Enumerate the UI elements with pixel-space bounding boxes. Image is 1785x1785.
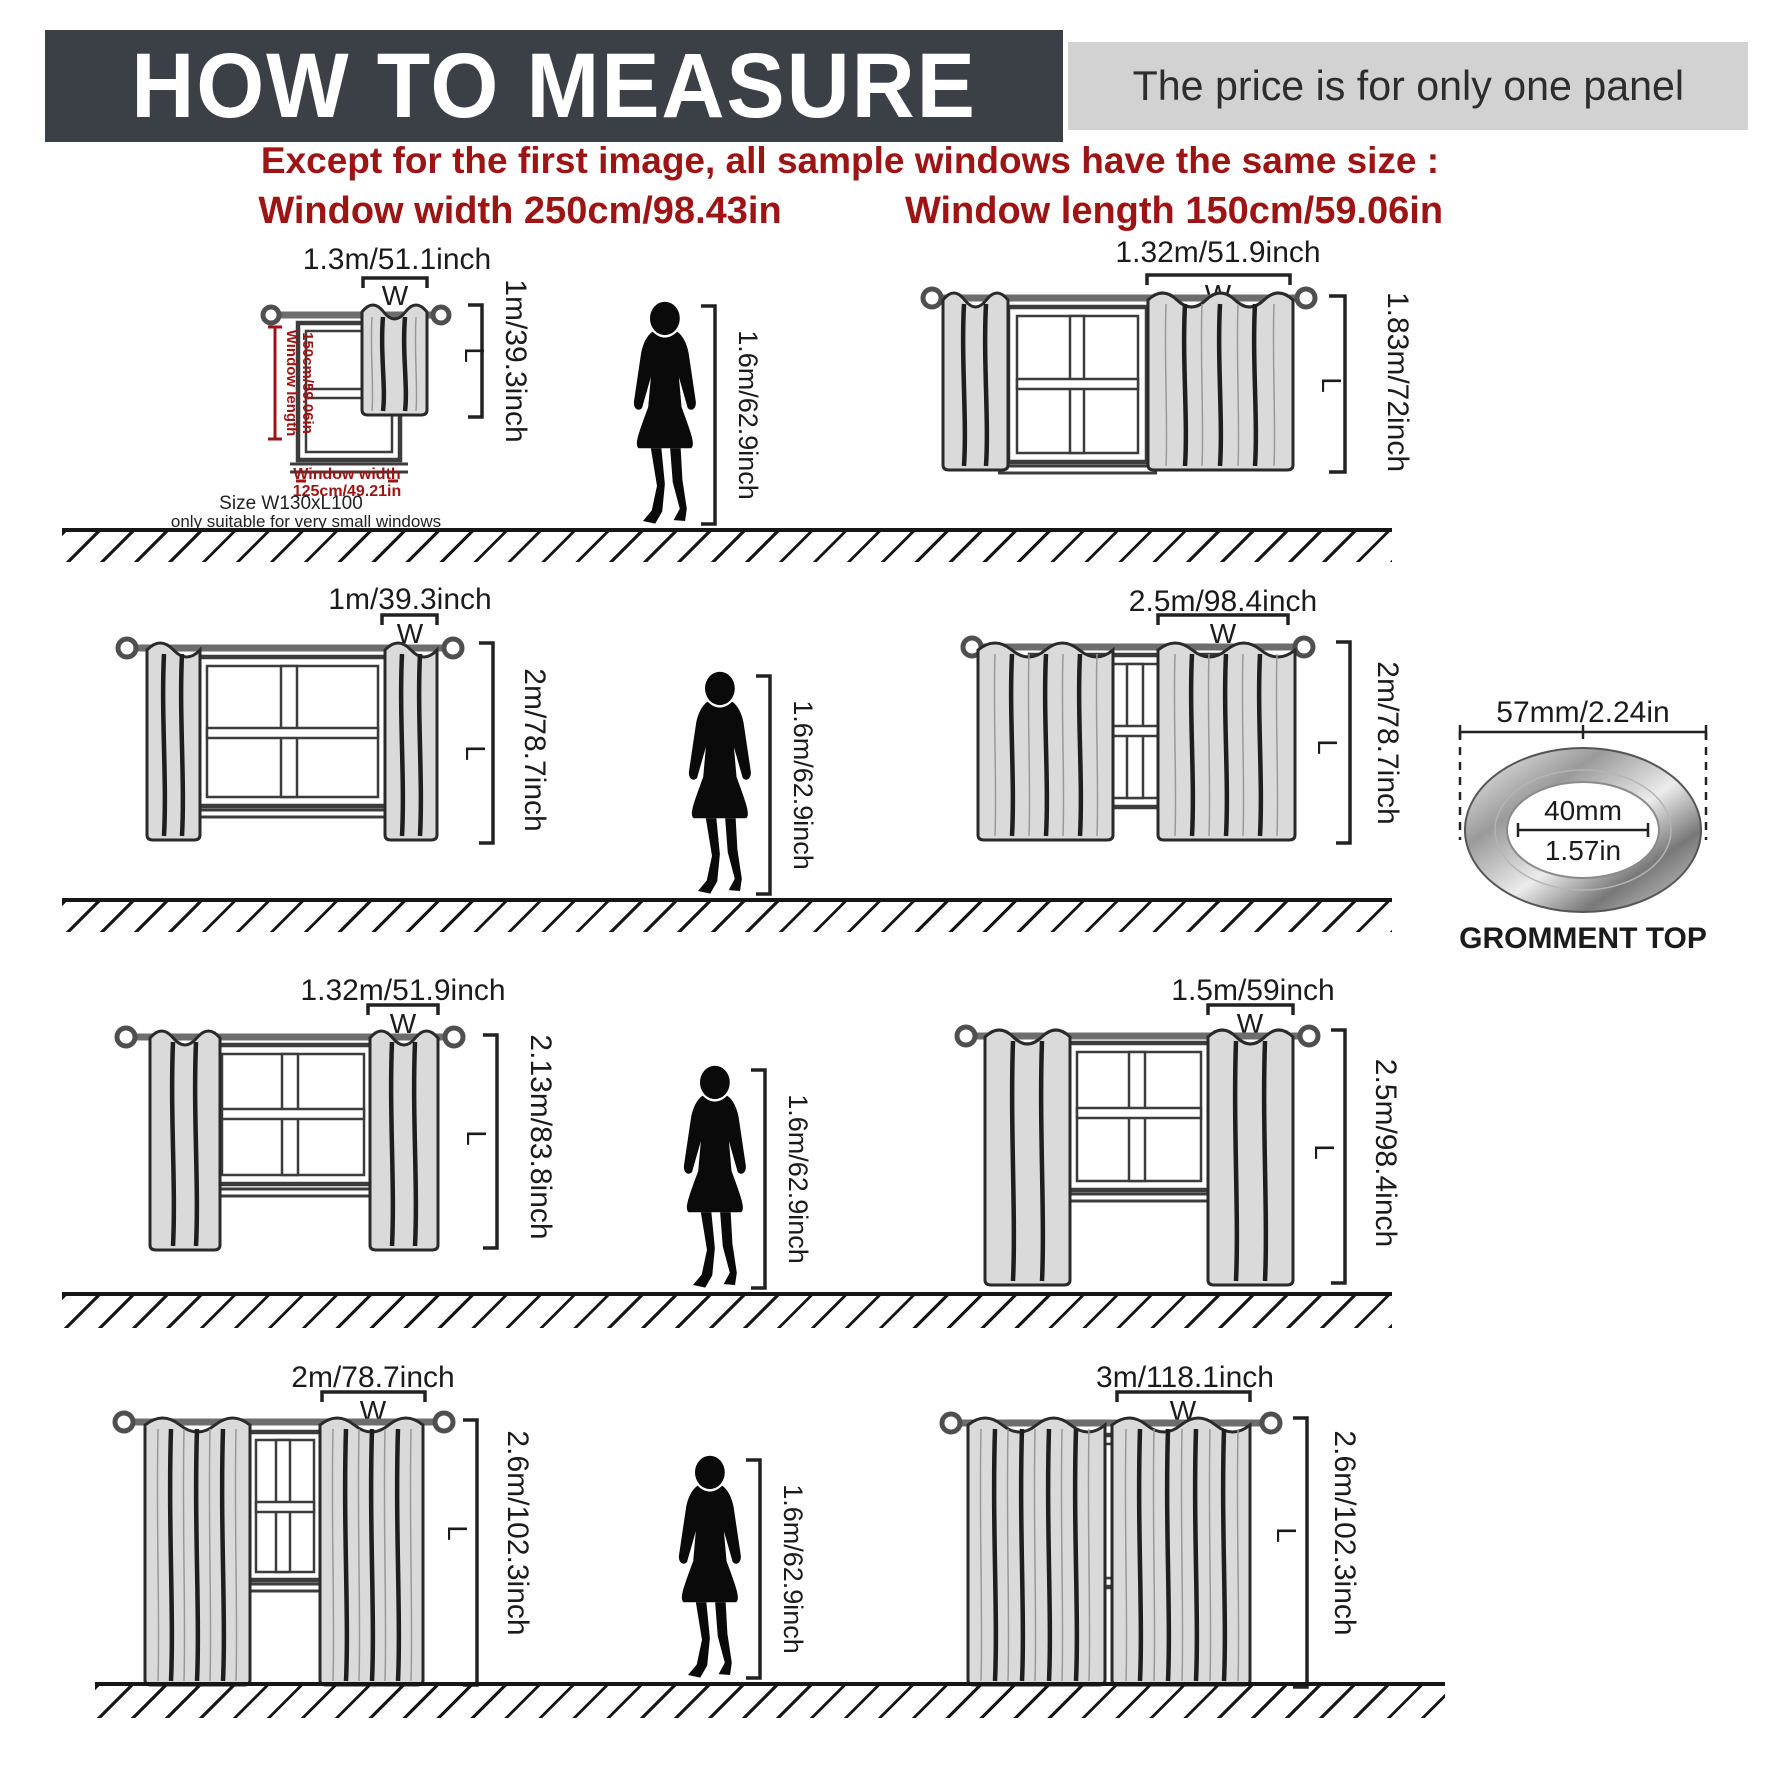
length-dimension-label: 2.6m/102.3inch	[501, 1430, 534, 1635]
length-dimension-label: 1.83m/72inch	[1381, 292, 1414, 472]
size-note: Size W130xL100	[219, 493, 363, 514]
diagram-curtain-3m-full: 3m/118.1inch W	[900, 1365, 1420, 1720]
person-height-label: 1.6m/62.9inch	[778, 1484, 808, 1654]
diagram-curtain-2m-right: 2.5m/98.4inch W	[930, 585, 1450, 915]
how-to-measure-infographic: HOW TO MEASURE The price is for only one…	[0, 0, 1785, 1785]
curtain-panel-right	[1112, 1418, 1250, 1685]
grommet-inner-mm-label: 40mm	[1544, 795, 1622, 826]
length-dimension-label: 2.6m/102.3inch	[1328, 1430, 1361, 1635]
window	[205, 1045, 381, 1196]
grommet-outer-diameter-label: 57mm/2.24in	[1496, 696, 1669, 729]
curtain-panel-left	[147, 643, 200, 840]
person-height-bracket	[756, 676, 770, 894]
grommet-inner-in-label: 1.57in	[1545, 835, 1621, 866]
l-letter: L	[460, 745, 491, 761]
person-silhouette	[684, 1066, 746, 1288]
curtain-panel-right	[1208, 1030, 1293, 1285]
curtain-panel-right	[385, 643, 437, 840]
grommet-detail: 57mm/2.24in 40mm 1.57in GROMMENT TOP	[1440, 690, 1760, 980]
person-scale-row1: 1.6m/62.9inch	[605, 296, 805, 536]
length-dimension-label: 2m/78.7inch	[1371, 661, 1404, 824]
width-dimension-label: 1.3m/51.1inch	[303, 243, 491, 276]
grommet-caption: GROMMENT TOP	[1459, 922, 1707, 955]
diagram-curtain-2p5m: 1.5m/59inch W L 2.5m/98.4inch	[930, 975, 1450, 1315]
length-dimension-label: 2.5m/98.4inch	[1369, 1059, 1402, 1247]
length-bracket	[479, 643, 493, 843]
title-banner: HOW TO MEASURE	[45, 30, 1063, 142]
intro-window-length-note: Window length 150cm/59.06in	[874, 190, 1474, 233]
person-height-label: 1.6m/62.9inch	[783, 1094, 813, 1264]
person-height-label: 1.6m/62.9inch	[788, 700, 818, 870]
diagram-curtain-2m-left: 1m/39.3inch W L 2m/78.7inch	[80, 585, 600, 915]
person-height-bracket	[751, 1070, 765, 1288]
width-dimension-label: 1.32m/51.9inch	[300, 975, 505, 1007]
curtain-panel-left	[150, 1031, 220, 1250]
width-dimension-label: 2m/78.7inch	[291, 1365, 454, 1394]
ground-line-row2	[62, 898, 1392, 932]
curtain-panel-right	[320, 1418, 423, 1685]
person-silhouette	[679, 1456, 741, 1678]
intro-window-width-note: Window width 250cm/98.43in	[220, 190, 820, 233]
diagram-curtain-2p6m-left: 2m/78.7inch W	[80, 1365, 600, 1720]
window-length-annotation: Window length 150cm/59.06in	[268, 327, 316, 439]
width-dimension-label: 1.5m/59inch	[1171, 975, 1334, 1007]
svg-text:150cm/59.06in: 150cm/59.06in	[299, 332, 316, 434]
w-letter: W	[382, 280, 409, 311]
length-dimension-label: 2m/78.7inch	[518, 668, 551, 831]
person-height-bracket	[701, 306, 715, 524]
person-silhouette	[689, 672, 751, 894]
window	[998, 307, 1157, 473]
curtain-panel-right	[1148, 293, 1293, 470]
person-scale-row4: 1.6m/62.9inch	[650, 1450, 850, 1690]
width-dimension-label: 3m/118.1inch	[1096, 1365, 1274, 1394]
page-title: HOW TO MEASURE	[131, 34, 977, 139]
length-dimension-label: 1m/39.3inch	[499, 279, 532, 442]
curtain-panel-left	[978, 643, 1113, 840]
intro-line: Except for the first image, all sample w…	[180, 140, 1520, 182]
price-note: The price is for only one panel	[1132, 62, 1683, 110]
diagram-curtain-2p13m: 1.32m/51.9inch W L 2.13m/83.8inch	[100, 975, 640, 1315]
ground-line-row1	[62, 528, 1392, 562]
l-letter: L	[442, 1525, 473, 1541]
l-letter: L	[1312, 739, 1343, 755]
person-scale-row2: 1.6m/62.9inch	[660, 666, 860, 906]
window	[240, 1432, 330, 1591]
curtain-panel-left	[968, 1418, 1105, 1685]
length-bracket	[463, 1420, 477, 1685]
window	[188, 657, 397, 817]
curtain-panel-right	[1158, 643, 1295, 840]
svg-text:Window width: Window width	[293, 466, 400, 483]
curtain-panel-left	[943, 293, 1008, 470]
curtain-panel-left	[985, 1030, 1070, 1285]
ground-line-row3	[62, 1292, 1392, 1328]
width-dimension-label: 1.32m/51.9inch	[1115, 240, 1320, 269]
price-note-banner: The price is for only one panel	[1068, 42, 1748, 130]
l-letter: L	[1309, 1144, 1340, 1160]
svg-text:Window length: Window length	[283, 330, 300, 437]
l-letter: L	[459, 347, 490, 363]
l-letter: L	[1271, 1527, 1302, 1543]
width-dimension-label: 1m/39.3inch	[328, 585, 491, 616]
length-bracket	[1293, 1418, 1307, 1687]
window	[1060, 1043, 1218, 1201]
person-scale-row3: 1.6m/62.9inch	[655, 1060, 855, 1300]
l-letter: L	[1316, 377, 1347, 393]
person-silhouette	[634, 302, 696, 524]
width-dimension-label: 2.5m/98.4inch	[1129, 585, 1317, 618]
l-letter: L	[461, 1130, 492, 1146]
ground-line-row4	[95, 1682, 1445, 1718]
curtain-panel-left	[145, 1418, 250, 1685]
curtain-panel-right	[370, 1031, 438, 1250]
person-height-bracket	[746, 1460, 760, 1678]
diagram-curtain-1p83m: 1.32m/51.9inch W	[900, 240, 1460, 540]
length-dimension-label: 2.13m/83.8inch	[524, 1034, 557, 1239]
curtain-panel	[362, 305, 427, 415]
person-height-label: 1.6m/62.9inch	[733, 330, 763, 500]
